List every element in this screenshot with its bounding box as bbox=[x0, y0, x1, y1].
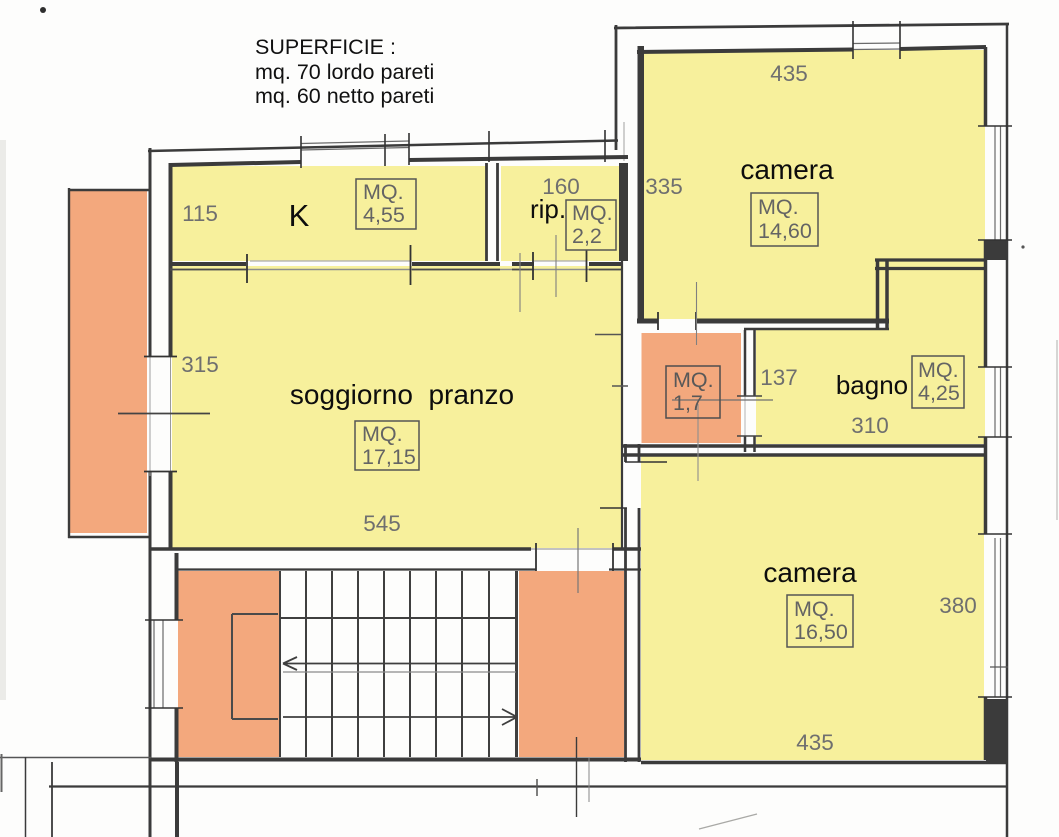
svg-text:115: 115 bbox=[182, 201, 218, 226]
svg-text:camera: camera bbox=[740, 154, 834, 185]
svg-text:bagno: bagno bbox=[836, 370, 908, 400]
svg-text:SUPERFICIE :: SUPERFICIE : bbox=[255, 35, 396, 59]
svg-text:mq. 60 netto pareti: mq. 60 netto pareti bbox=[255, 84, 434, 108]
svg-text:soggiorno pranzo: soggiorno pranzo bbox=[290, 379, 514, 410]
svg-text:4,55: 4,55 bbox=[363, 203, 405, 227]
svg-text:16,50: 16,50 bbox=[794, 620, 848, 644]
svg-text:camera: camera bbox=[763, 557, 857, 588]
svg-text:MQ.: MQ. bbox=[918, 358, 959, 382]
svg-text:MQ.: MQ. bbox=[362, 422, 403, 446]
svg-text:380: 380 bbox=[939, 593, 977, 618]
svg-text:MQ.: MQ. bbox=[572, 201, 613, 225]
svg-text:1,7: 1,7 bbox=[673, 391, 703, 415]
svg-text:435: 435 bbox=[796, 730, 834, 755]
svg-text:rip.: rip. bbox=[530, 194, 566, 224]
svg-text:MQ.: MQ. bbox=[794, 597, 835, 621]
svg-text:315: 315 bbox=[181, 352, 219, 377]
svg-text:K: K bbox=[289, 198, 310, 233]
svg-text:MQ.: MQ. bbox=[363, 180, 404, 204]
svg-text:14,60: 14,60 bbox=[758, 219, 812, 243]
svg-text:2,2: 2,2 bbox=[572, 224, 602, 248]
svg-text:MQ.: MQ. bbox=[758, 195, 799, 219]
svg-text:MQ.: MQ. bbox=[673, 368, 714, 392]
svg-text:545: 545 bbox=[363, 511, 401, 536]
svg-text:17,15: 17,15 bbox=[362, 445, 416, 469]
svg-text:335: 335 bbox=[645, 174, 683, 199]
svg-text:310: 310 bbox=[851, 413, 889, 438]
svg-text:435: 435 bbox=[770, 61, 808, 86]
svg-text:mq. 70 lordo pareti: mq. 70 lordo pareti bbox=[255, 60, 434, 84]
svg-text:137: 137 bbox=[760, 365, 798, 390]
svg-text:4,25: 4,25 bbox=[918, 381, 960, 405]
